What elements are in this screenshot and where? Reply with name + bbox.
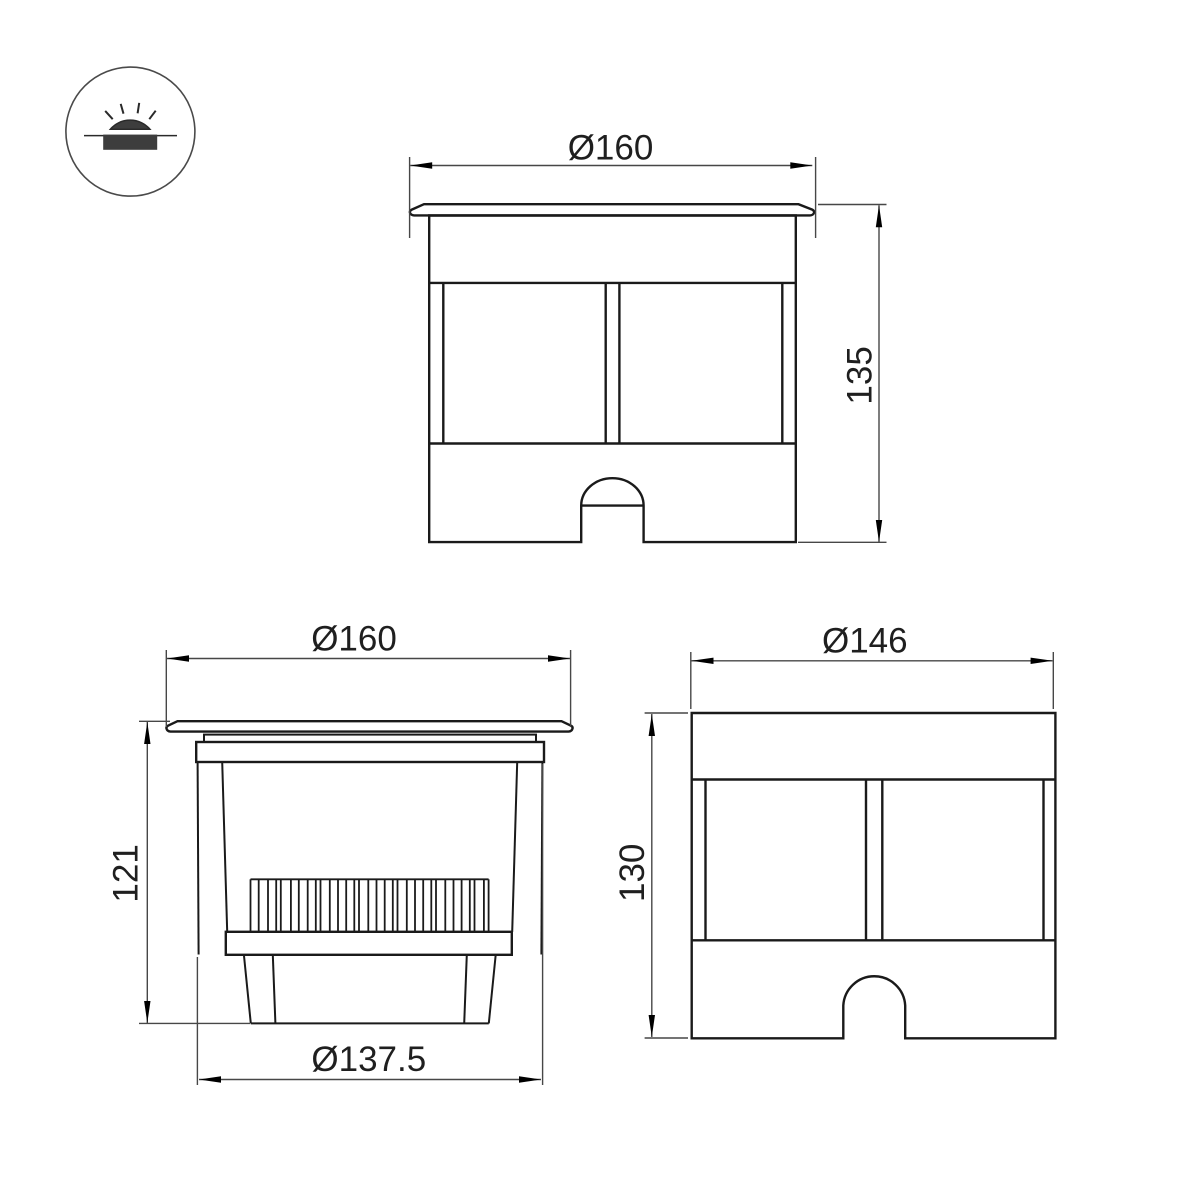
svg-text:121: 121 — [107, 844, 146, 902]
svg-text:130: 130 — [613, 844, 652, 902]
svg-text:Ø160: Ø160 — [311, 620, 397, 659]
svg-text:Ø160: Ø160 — [568, 129, 654, 168]
svg-text:Ø137.5: Ø137.5 — [311, 1040, 426, 1079]
svg-text:135: 135 — [841, 346, 880, 404]
svg-text:Ø146: Ø146 — [822, 622, 908, 661]
